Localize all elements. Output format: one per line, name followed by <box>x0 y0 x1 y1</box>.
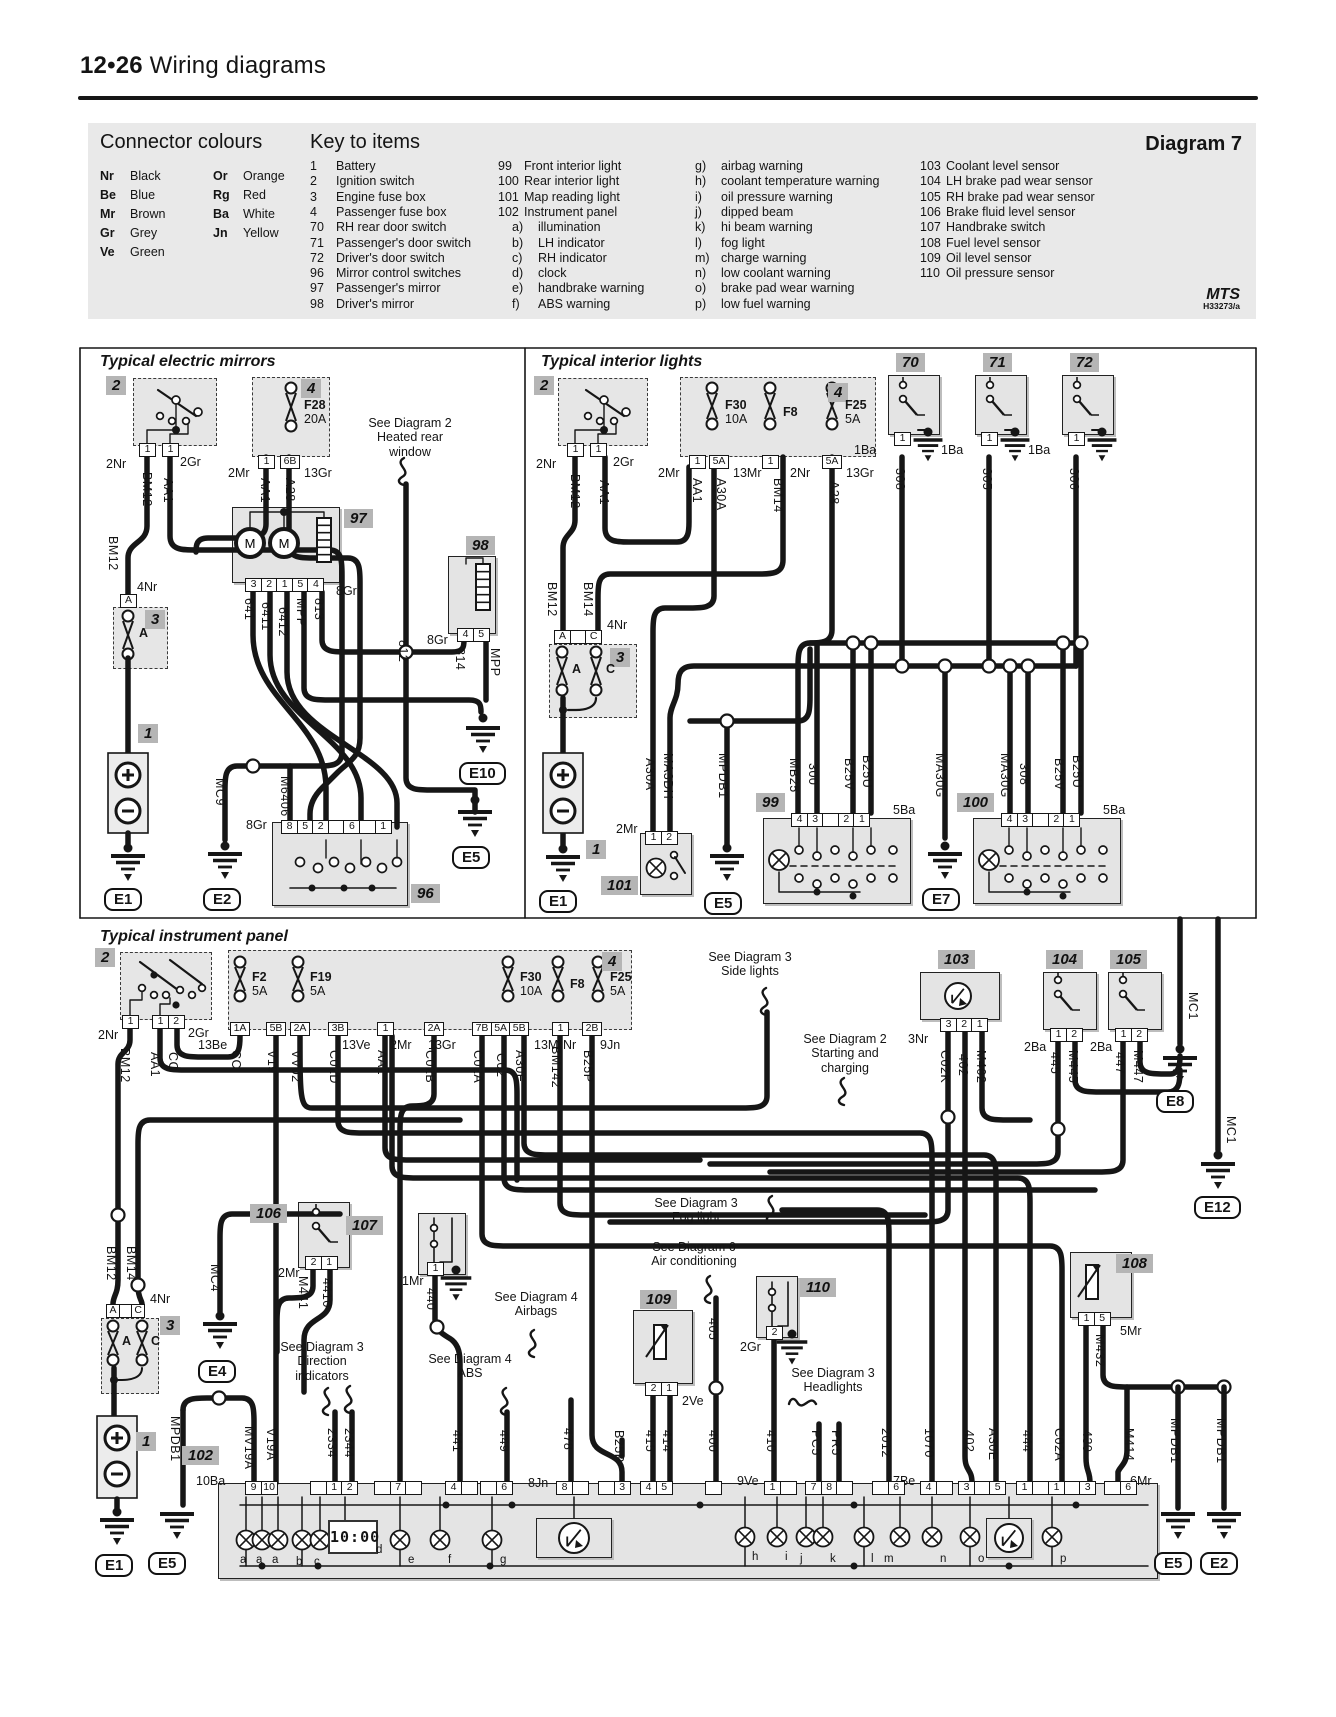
connector-pins: 15 <box>1078 1312 1109 1326</box>
colour-code-row: BaWhite <box>213 205 275 224</box>
component-number-tag: 2 <box>534 376 554 395</box>
page-header: 12•26 Wiring diagrams <box>80 52 326 80</box>
connector-pins: 4 <box>445 1481 476 1495</box>
pin-blank <box>461 1481 478 1495</box>
wire-id-label: A30E <box>513 1050 527 1083</box>
wire-id-label: 410 <box>764 1430 778 1452</box>
pin-2: 2 <box>305 1256 322 1270</box>
pin-1: 1 <box>122 1015 139 1029</box>
pin-1: 1 <box>1050 1028 1067 1042</box>
pin-C: C <box>585 630 602 644</box>
label: F30 <box>520 970 542 984</box>
pin-8: 8 <box>556 1481 573 1495</box>
component-number-tag: 4 <box>301 379 321 398</box>
label: C <box>606 662 615 676</box>
earth-ground-icon <box>928 854 962 879</box>
pin-5: 5 <box>1094 1312 1111 1326</box>
pin-blank <box>1032 813 1049 827</box>
label: 20A <box>304 412 326 426</box>
continues-elsewhere-squiggle <box>789 1399 816 1405</box>
connector-pins: 85261 <box>281 820 390 834</box>
earth-point-tag: E8 <box>1156 1090 1194 1113</box>
component-number-tag: 101 <box>601 876 638 895</box>
earth-ground-icon <box>1088 440 1117 461</box>
key-item-row: 96Mirror control switches <box>310 266 461 281</box>
wire-id-label: 812 <box>396 640 410 662</box>
label: 2Ba <box>1024 1040 1046 1054</box>
wire-id-label: 447 <box>1113 1052 1127 1074</box>
component-number-tag: 102 <box>182 1446 219 1465</box>
label: F25 <box>610 970 632 984</box>
component-box <box>272 822 408 906</box>
key-item-row: 98Driver's mirror <box>310 297 414 312</box>
wire-id-label: 306 <box>1067 468 1081 490</box>
note-airbags: See Diagram 4 Airbags <box>490 1290 582 1319</box>
wire-id-label: MC9 <box>213 778 227 806</box>
wire-id-label: 814 <box>453 648 467 670</box>
component-box <box>232 507 340 583</box>
component-box <box>920 972 1000 1020</box>
pin-3: 3 <box>1017 813 1034 827</box>
connector-pins: 32154 <box>245 578 323 592</box>
wire-id-label: C02 <box>494 1053 508 1077</box>
wire-id-label: B25U <box>1070 755 1084 788</box>
wire-id-label: B25U <box>860 755 874 788</box>
connector-pins: 12 <box>1115 1028 1146 1042</box>
battery-icon <box>108 753 148 833</box>
pin-1: 1 <box>552 1022 569 1036</box>
pin-10: 10 <box>261 1481 278 1495</box>
wire-id-label: 6412 <box>276 607 290 637</box>
connection-dot <box>221 842 230 851</box>
wire-id-label: M432 <box>1093 1334 1107 1367</box>
junction <box>1218 1381 1231 1394</box>
panel-item-letter: o <box>978 1553 984 1565</box>
label: 8Gr <box>246 818 267 832</box>
connector-pins: 6B <box>280 455 299 469</box>
label: F8 <box>570 977 585 991</box>
pin-blank <box>1104 1481 1121 1495</box>
component-box <box>1062 375 1114 435</box>
battery-icon <box>543 753 583 833</box>
pin-1: 1 <box>1048 1481 1065 1495</box>
connector-pins: 2A <box>290 1022 309 1036</box>
key-item-row: 71Passenger's door switch <box>310 236 471 251</box>
label: 5A <box>845 412 860 426</box>
wire-id-label: B25V <box>1052 758 1066 791</box>
pin-5: 5 <box>473 628 490 642</box>
label: A <box>572 662 581 676</box>
label: 8Gr <box>336 584 357 598</box>
pin-2B: 2B <box>582 1022 602 1036</box>
continues-elsewhere-squiggle <box>501 1388 507 1415</box>
colour-code-row: VeGreen <box>100 243 165 262</box>
label: 2Mr <box>390 1038 412 1052</box>
wire-id-label: 2344 <box>342 1428 356 1458</box>
clock-display: 10:00 <box>328 1520 378 1554</box>
pin-5: 5 <box>656 1481 673 1495</box>
wire-id-label: BM12 <box>568 474 582 509</box>
pin-3: 3 <box>245 578 262 592</box>
pin-2: 2 <box>312 820 329 834</box>
label: 1Ba <box>854 443 876 457</box>
wire-id-label: 813 <box>312 598 326 620</box>
pin-1: 1 <box>276 578 293 592</box>
pin-3: 3 <box>940 1018 957 1032</box>
connector-pins: 78 <box>805 1481 852 1495</box>
panel-item-letter: a <box>240 1554 246 1566</box>
panel-item-letter: f <box>448 1554 451 1566</box>
connector-pins: 12 <box>1050 1028 1081 1042</box>
connection-dot <box>471 796 480 805</box>
key-item-row: c)RH indicator <box>512 251 607 266</box>
connector-pins: 12 <box>152 1015 183 1029</box>
connector-pins: 3B <box>328 1022 347 1036</box>
earth-ground-icon <box>441 1278 472 1301</box>
connector-pins: 2 <box>766 1326 782 1340</box>
wire-id-label: MA30G <box>998 753 1012 798</box>
key-item-row: 1Battery <box>310 159 376 174</box>
wire-id-label: MB25 <box>787 758 801 793</box>
component-number-tag: 103 <box>938 950 975 969</box>
component-number-tag: 2 <box>95 948 115 967</box>
component-number-tag: 107 <box>346 1216 383 1235</box>
pin-A: A <box>120 594 137 608</box>
connector-pins: 5A <box>822 455 841 469</box>
legend-colours-title: Connector colours <box>100 131 262 154</box>
connector-pins: 1 <box>162 443 178 457</box>
wire-id-label: MV19A <box>242 1426 256 1470</box>
label: 13Mr <box>733 466 761 480</box>
junction <box>942 1111 955 1124</box>
wire-id-label: V19 <box>265 1050 279 1074</box>
pin-1: 1 <box>971 1018 988 1032</box>
key-item-row: 106Brake fluid level sensor <box>920 205 1075 220</box>
note-fog-light: See Diagram 3 Fog light <box>636 1196 756 1225</box>
note-side-lights: See Diagram 3 Side lights <box>690 950 810 979</box>
pin-1: 1 <box>1115 1028 1132 1042</box>
legend-panel: Connector colours NrBlackBeBlueMrBrownGr… <box>88 123 1256 319</box>
pin-1: 1 <box>1078 1312 1095 1326</box>
wire-A28-int <box>798 457 832 813</box>
component-box <box>1043 972 1097 1030</box>
pin-1: 1 <box>853 813 870 827</box>
mts-logo: MTS H33273/a <box>1203 290 1240 311</box>
pin-3B: 3B <box>328 1022 348 1036</box>
pin-2: 2 <box>838 813 855 827</box>
note-heated-rear-window: See Diagram 2 Heated rear window <box>360 416 460 459</box>
component-box <box>633 1310 693 1384</box>
pin-4: 4 <box>920 1481 937 1495</box>
label: 2Ve <box>682 1394 704 1408</box>
pin-1: 1 <box>1063 813 1080 827</box>
key-item-row: f)ABS warning <box>512 297 610 312</box>
panel-item-letter: i <box>785 1551 788 1563</box>
key-item-row: p)low fuel warning <box>695 297 811 312</box>
connector-pins: 21 <box>645 1382 676 1396</box>
earth-ground-icon <box>914 440 943 461</box>
page-title: Wiring diagrams <box>150 52 326 79</box>
pin-blank <box>836 1481 853 1495</box>
pin-1: 1 <box>152 1015 169 1029</box>
pin-2: 2 <box>1048 813 1065 827</box>
label: 13Gr <box>846 466 874 480</box>
wire-id-label: 308 <box>893 468 907 490</box>
wire-id-label: AA1 <box>375 1050 389 1075</box>
label: 4Nr <box>607 618 627 632</box>
connector-pins: 1 <box>764 1481 795 1495</box>
wire-430 <box>1086 1326 1090 1483</box>
pin-7B: 7B <box>472 1022 492 1036</box>
wire-id-label: AA1 <box>161 478 175 503</box>
wire-id-label: A30E <box>986 1428 1000 1461</box>
component-number-tag: 99 <box>756 793 785 812</box>
pin-7: 7 <box>805 1481 822 1495</box>
component-box <box>975 375 1027 435</box>
pin-3: 3 <box>807 813 824 827</box>
panel-item-letter: m <box>884 1553 894 1565</box>
component-number-tag: 109 <box>640 1290 677 1309</box>
wire-id-label: 430 <box>1080 1430 1094 1452</box>
panel-item-letter: b <box>296 1556 302 1568</box>
pin-5A: 5A <box>822 455 842 469</box>
pin-5: 5 <box>292 578 309 592</box>
wire-id-label: C02B <box>423 1050 437 1083</box>
connector-pins: 1 <box>139 443 155 457</box>
wire-id-label: AA1 <box>258 478 272 503</box>
wire-A30E <box>524 1036 996 1483</box>
pin-5A: 5A <box>709 455 729 469</box>
pin-blank <box>359 820 376 834</box>
junction <box>431 1321 444 1334</box>
pin-1: 1 <box>1016 1481 1033 1495</box>
key-item-row: o)brake pad wear warning <box>695 281 854 296</box>
pin-blank <box>872 1481 889 1495</box>
label: 2Gr <box>613 455 634 469</box>
connector-pins: 5B <box>266 1022 285 1036</box>
earth-ground-icon <box>1161 1514 1195 1539</box>
panel-item-letter: n <box>940 1553 946 1565</box>
section-title-mirrors: Typical electric mirrors <box>100 353 276 371</box>
connector-pins: 1 <box>689 455 705 469</box>
panel-item-letter: j <box>800 1553 803 1565</box>
label: 3Nr <box>908 1032 928 1046</box>
connector-pins: 6 <box>480 1481 511 1495</box>
label: 5Ba <box>893 803 915 817</box>
note-air-conditioning: See Diagram 6 Air conditioning <box>628 1240 760 1269</box>
wire-id-label: 440 <box>424 1288 438 1310</box>
pin-2: 2 <box>168 1015 185 1029</box>
continues-elsewhere-squiggle <box>839 1078 845 1105</box>
panel-item-letter: e <box>408 1554 414 1566</box>
connector-pins: 21 <box>305 1256 336 1270</box>
connector-pins: A <box>120 594 136 608</box>
component-number-tag: 96 <box>411 884 440 903</box>
connector-pins: 1A <box>230 1022 249 1036</box>
wire-id-label: M441 <box>296 1276 310 1309</box>
pin-A: A <box>554 630 571 644</box>
pin-6: 6 <box>343 820 360 834</box>
connection-dot <box>479 714 488 723</box>
label: 4Nr <box>150 1292 170 1306</box>
wire-id-label: MPP <box>294 598 308 627</box>
wire-id-label: MC1 <box>1224 1116 1238 1144</box>
component-box <box>763 818 911 904</box>
panel-item-letter: g <box>500 1554 506 1566</box>
label: 13Ve <box>342 1038 371 1052</box>
panel-item-letter: d <box>376 1544 382 1556</box>
component-box <box>120 952 212 1020</box>
label: 8Jn <box>528 1476 548 1490</box>
earth-ground-icon <box>203 1324 237 1349</box>
wire-402 <box>965 1032 972 1483</box>
junction <box>710 1382 723 1395</box>
component-box <box>986 1518 1032 1558</box>
key-item-row: 103Coolant level sensor <box>920 159 1059 174</box>
wire-id-label: 402 <box>962 1430 976 1452</box>
colour-code-row: NrBlack <box>100 167 161 186</box>
label: F28 <box>304 398 326 412</box>
key-item-row: m)charge warning <box>695 251 806 266</box>
colour-code-row: RgRed <box>213 186 266 205</box>
wire-id-label: C02D <box>327 1050 341 1084</box>
connector-pins: 7 <box>374 1481 421 1495</box>
wire-id-label: C02A <box>1052 1428 1066 1461</box>
label: 5A <box>610 984 625 998</box>
pin-2: 2 <box>1131 1028 1148 1042</box>
wire-id-label: M447 <box>1131 1050 1145 1083</box>
earth-point-tag: E7 <box>922 888 960 911</box>
wire-id-label: M414 <box>1122 1428 1136 1461</box>
pin-1: 1 <box>321 1256 338 1270</box>
pin-8: 8 <box>281 820 298 834</box>
label: F30 <box>725 398 747 412</box>
pin-blank <box>570 630 587 644</box>
key-item-row: 72Driver's door switch <box>310 251 445 266</box>
pin-blank <box>936 1481 953 1495</box>
connection-dot <box>216 1312 225 1321</box>
connector-pins: 1 <box>122 1015 138 1029</box>
pin-6: 6 <box>1120 1481 1137 1495</box>
connection-dot <box>559 845 568 854</box>
connector-pins: AC <box>106 1304 144 1318</box>
wire-id-label: C02A <box>471 1050 485 1083</box>
component-number-tag: 3 <box>145 610 165 629</box>
wire-M402 <box>982 1032 1030 1120</box>
connector-pins: AC <box>554 630 601 644</box>
key-item-row: 108Fuel level sensor <box>920 236 1041 251</box>
panel-item-letter: c <box>314 1556 320 1568</box>
connection-dot <box>113 1508 122 1517</box>
diagram-number-label: Diagram 7 <box>1145 133 1242 156</box>
pin-1: 1 <box>162 443 179 457</box>
pin-blank <box>374 1481 391 1495</box>
label: 9Ve <box>737 1474 759 1488</box>
wire-id-label: B25P <box>581 1050 595 1083</box>
junction <box>983 660 996 673</box>
pin-1: 1 <box>139 443 156 457</box>
pin-2A: 2A <box>424 1022 444 1036</box>
wire-id-label: BM12 <box>106 536 120 571</box>
continues-elsewhere-squiggle <box>323 1388 329 1415</box>
pin-blank <box>705 1481 722 1495</box>
connection-dot <box>1214 1151 1223 1160</box>
connector-pins: 321 <box>940 1018 987 1032</box>
pin-6: 6 <box>888 1481 905 1495</box>
wire-B25P <box>592 1036 622 1483</box>
connector-pins: 7B5A5B <box>472 1022 528 1036</box>
earth-ground-icon <box>546 857 580 882</box>
label: 10A <box>725 412 747 426</box>
wire-id-label: 305 <box>980 468 994 490</box>
earth-ground-icon <box>111 856 145 881</box>
key-item-row: 109Oil level sensor <box>920 251 1031 266</box>
wire-id-label: BM14 <box>771 478 785 513</box>
component-box <box>558 378 648 446</box>
pin-4: 4 <box>640 1481 657 1495</box>
pin-2: 2 <box>1066 1028 1083 1042</box>
section-title-interior: Typical interior lights <box>541 353 702 371</box>
earth-point-tag: E4 <box>198 1360 236 1383</box>
earth-point-tag: E5 <box>452 846 490 869</box>
connection-dot <box>1176 1045 1185 1054</box>
pin-1: 1 <box>894 432 911 446</box>
pin-1: 1 <box>1068 432 1085 446</box>
component-number-tag: 100 <box>957 793 994 812</box>
wire-id-label: 4410 <box>320 1278 334 1308</box>
label: 2Gr <box>180 455 201 469</box>
component-number-tag: 71 <box>983 353 1012 372</box>
connector-pins: 1 <box>567 443 583 457</box>
earth-ground-icon <box>100 1520 134 1545</box>
wire-id-label: A30A <box>643 758 657 791</box>
wire-id-label: MC4 <box>208 1264 222 1292</box>
component-number-tag: 1 <box>136 1432 156 1451</box>
wire-id-label: MPDB1 <box>716 753 730 799</box>
key-item-row: d)clock <box>512 266 566 281</box>
key-item-row: 3Engine fuse box <box>310 190 426 205</box>
pin-blank <box>1032 1481 1049 1495</box>
pin-8: 8 <box>821 1481 838 1495</box>
connector-pins: 12 <box>645 831 676 845</box>
legend-key-title: Key to items <box>310 131 420 154</box>
pin-2: 2 <box>956 1018 973 1032</box>
junction <box>1022 660 1035 673</box>
earth-ground-icon <box>160 1514 194 1539</box>
key-item-row: 102Instrument panel <box>498 205 617 220</box>
wire-id-label: PC5 <box>809 1430 823 1456</box>
label: C <box>151 1334 160 1348</box>
earth-point-tag: E1 <box>95 1554 133 1577</box>
continues-elsewhere-squiggle <box>399 458 405 485</box>
section-title-instrument: Typical instrument panel <box>100 928 288 946</box>
component-number-tag: 3 <box>160 1316 180 1335</box>
panel-item-letter: h <box>752 1551 758 1563</box>
wire-id-label: BM14 <box>124 1246 138 1281</box>
connector-pins: 8 <box>556 1481 587 1495</box>
connector-pins <box>705 1481 721 1495</box>
wire-id-label: MA30G <box>933 753 947 798</box>
key-item-row: 104LH brake pad wear sensor <box>920 174 1093 189</box>
wire-id-label: M6406 <box>278 776 292 817</box>
wire-id-label: A28 <box>827 481 841 505</box>
wire-id-label: 300 <box>806 763 820 785</box>
pin-C: C <box>131 1304 145 1318</box>
pin-5: 5 <box>989 1481 1006 1495</box>
mts-logo-code: H33273/a <box>1203 301 1240 311</box>
pin-9: 9 <box>245 1481 262 1495</box>
connector-pins: 1 <box>981 432 997 446</box>
